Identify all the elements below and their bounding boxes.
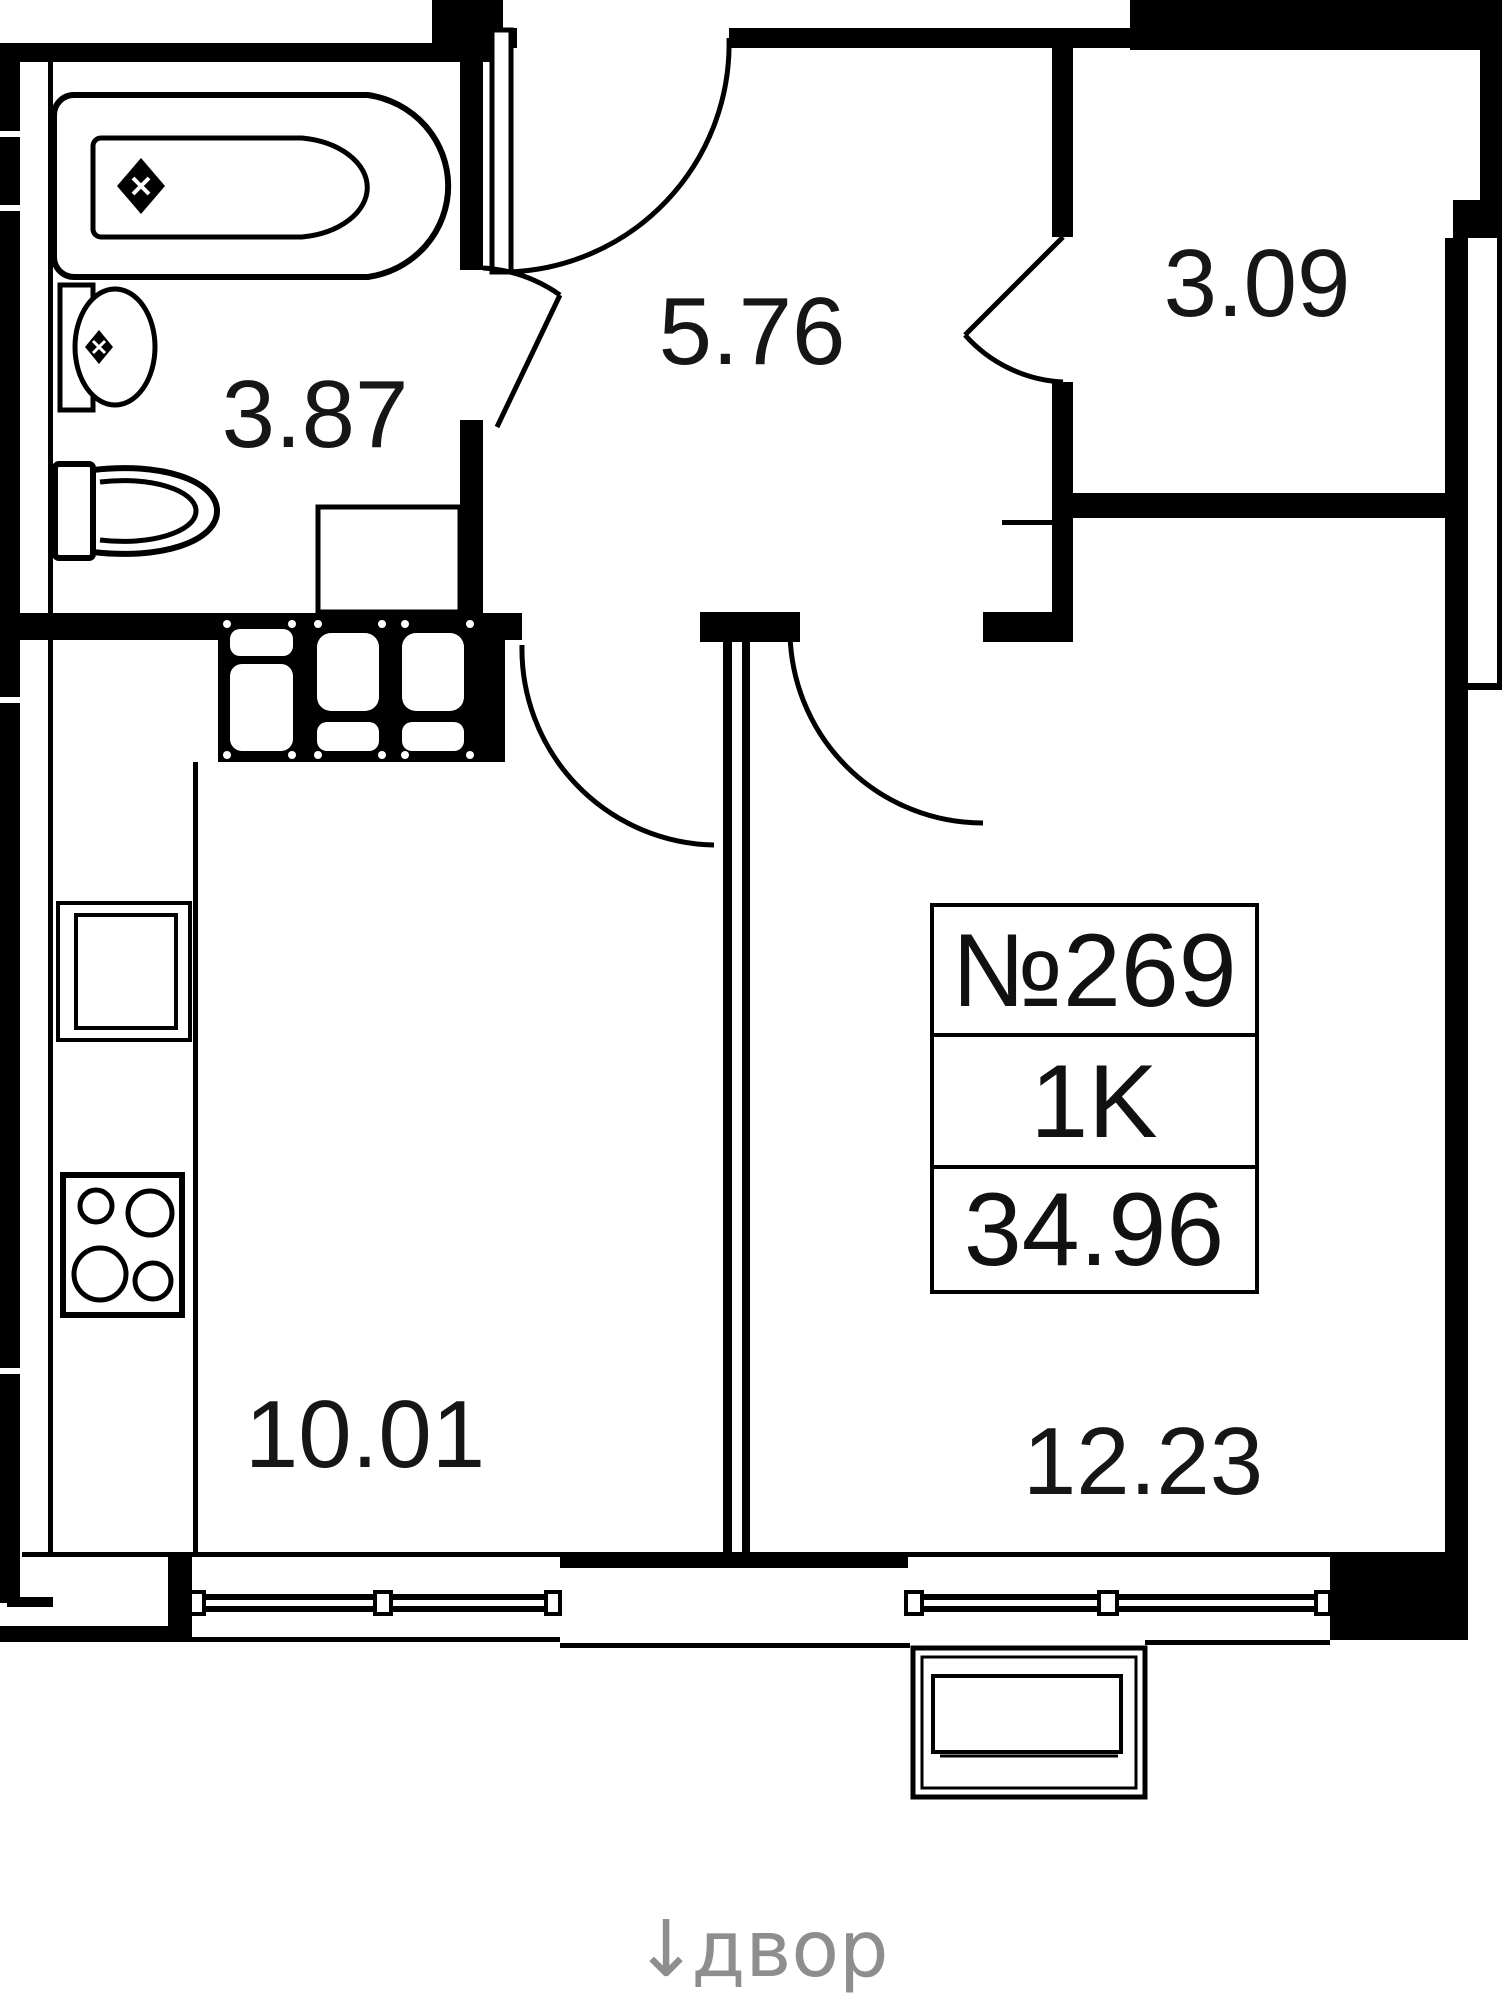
living-room-door-arc (790, 630, 983, 823)
kitchen-area-label: 10.01 (245, 1381, 485, 1488)
unit-info-box: №269 1K 34.96 (932, 905, 1257, 1292)
living-room-window (906, 1592, 1330, 1614)
doors (483, 30, 1063, 845)
courtyard-label: ↓ двор (633, 1905, 888, 1995)
stove-icon (63, 1175, 182, 1315)
living-room-area-label: 12.23 (1023, 1408, 1263, 1515)
unit-total-area: 34.96 (964, 1172, 1224, 1288)
counter-edge (193, 762, 198, 1552)
closet-area-label: 3.09 (1164, 230, 1351, 337)
entrance-door-arc (507, 38, 729, 272)
kitchen-counter-unit (218, 617, 505, 762)
kitchen-sink-icon (58, 903, 190, 1040)
courtyard-arrow-icon: ↓ (633, 1905, 698, 1995)
floor-plan: 3.87 5.76 3.09 10.01 12.23 №269 1K 34.96… (0, 0, 1502, 2000)
closet-door-leaf (965, 237, 1063, 335)
floor-plan-canvas: 3.87 5.76 3.09 10.01 12.23 №269 1K 34.96… (0, 0, 1502, 2000)
hallway-area-label: 5.76 (659, 278, 846, 385)
kitchen-door-arc (522, 645, 714, 845)
balcony (913, 1648, 1145, 1797)
kitchen-window (190, 1592, 560, 1614)
duct-shaft (318, 507, 460, 612)
bathroom-area-label: 3.87 (222, 361, 409, 468)
windows (0, 1552, 1468, 1797)
room-labels: 3.87 5.76 3.09 10.01 12.23 (222, 230, 1351, 1515)
unit-number: №269 (951, 913, 1236, 1029)
entrance-door-leaf (492, 30, 511, 272)
bathroom-fixtures (54, 95, 460, 612)
bathtub-icon (54, 95, 448, 277)
bathroom-door-leaf (497, 295, 560, 427)
unit-rooms: 1K (1030, 1044, 1157, 1160)
closet-door-arc (965, 335, 1063, 382)
toilet-tank (55, 464, 93, 558)
courtyard-text: двор (691, 1905, 888, 1995)
